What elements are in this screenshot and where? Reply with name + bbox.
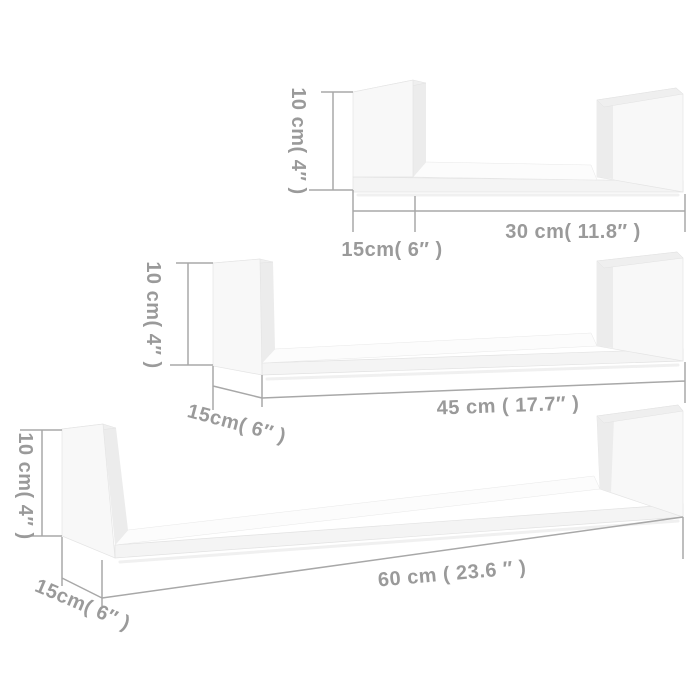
medium-shelf-right-panel-inner bbox=[597, 261, 613, 348]
large-shelf-depth-label: 15cm( 6″ ) bbox=[32, 575, 134, 635]
small-shelf-left-panel bbox=[353, 80, 413, 177]
product-dimension-diagram: 10 cm( 4″ ) 15cm( 6″ ) 30 cm( 11.8″ ) 10… bbox=[0, 0, 700, 700]
small-shelf-left-panel-inner bbox=[413, 80, 426, 177]
medium-shelf-left-panel-inner bbox=[260, 259, 275, 363]
small-shelf-plank-top bbox=[413, 162, 597, 180]
medium-shelf-left-panel bbox=[213, 259, 262, 375]
large-shelf-height-label: 10 cm( 4″ ) bbox=[14, 432, 36, 539]
medium-shelf-height-dim-line bbox=[170, 263, 213, 365]
medium-shelf-depth-label: 15cm( 6″ ) bbox=[185, 400, 289, 447]
large-shelf-width-label: 60 cm ( 23.6 ″ ) bbox=[377, 557, 527, 592]
medium-shelf-height-label: 10 cm( 4″ ) bbox=[142, 261, 164, 368]
shelf-large-60cm: 10 cm( 4″ ) 15cm( 6″ ) 60 cm ( 23.6 ″ ) bbox=[14, 405, 683, 635]
small-shelf-height-label: 10 cm( 4″ ) bbox=[287, 87, 309, 194]
small-shelf-width-label: 30 cm( 11.8″ ) bbox=[505, 221, 641, 243]
small-shelf-depth-label: 15cm( 6″ ) bbox=[341, 239, 442, 261]
shelf-set-dimensions-svg: 10 cm( 4″ ) 15cm( 6″ ) 30 cm( 11.8″ ) 10… bbox=[0, 0, 700, 700]
medium-shelf-width-label: 45 cm ( 17.7″ ) bbox=[436, 393, 579, 420]
small-shelf-right-panel-inner bbox=[597, 100, 613, 179]
small-shelf-height-dim-line bbox=[309, 92, 353, 190]
shelf-small-30cm: 10 cm( 4″ ) 15cm( 6″ ) 30 cm( 11.8″ ) bbox=[287, 80, 685, 261]
